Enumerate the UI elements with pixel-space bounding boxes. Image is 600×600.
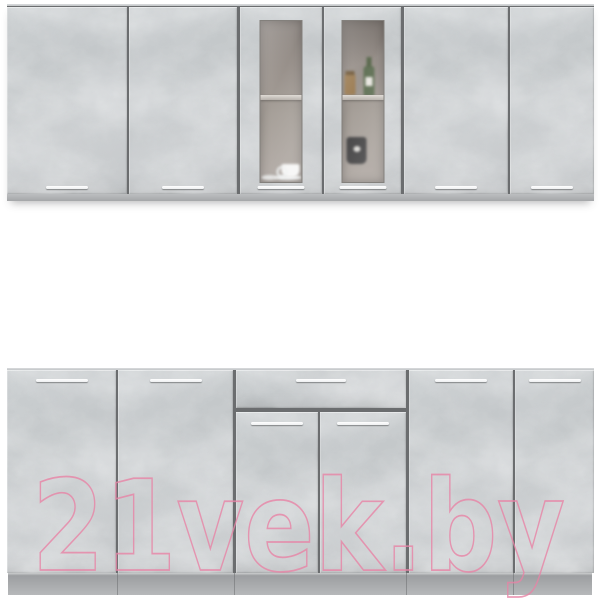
door-handle [339,186,386,189]
upper-cabinet-row [7,4,594,201]
door-handle [36,379,88,382]
upper-glass-door-left [240,7,322,194]
door-handle [251,422,303,425]
concrete-texture [409,370,513,573]
plinth-seam [513,573,514,595]
frost-overlay [261,21,302,182]
concrete-texture [515,370,594,573]
door-handle [258,186,305,189]
upper-door-5 [404,7,508,194]
plinth [8,573,592,595]
upper-top-edge [7,4,594,6]
upper-door-6 [510,7,594,194]
concrete-texture [118,370,233,573]
concrete-texture [320,412,406,573]
upper-glass-door-right [324,7,401,194]
base-door-6 [515,370,594,573]
upper-carcass-bottom [7,194,594,201]
concrete-texture [236,370,406,408]
door-handle [531,186,573,189]
door-handle [435,379,487,382]
door-handle [337,422,389,425]
concrete-texture [404,7,508,194]
base-drawer-front [236,370,406,408]
frosted-glass-pane [260,20,303,183]
concrete-texture [129,7,237,194]
door-handle [46,186,88,189]
plinth-seam [117,573,118,595]
concrete-texture [7,370,116,573]
concrete-texture [7,7,127,194]
frosted-glass-pane [341,20,384,183]
door-handle [435,186,477,189]
base-door-1 [7,370,116,573]
plinth-seam [406,573,407,595]
base-door-5 [409,370,513,573]
base-door-2 [118,370,233,573]
door-handle [162,186,204,189]
plinth-seam [234,573,235,595]
door-handle [529,379,581,382]
base-cabinet-row [7,368,594,573]
door-handle [150,379,202,382]
base-center-door-right [320,412,406,573]
product-photo-kitchen-set: 21vek.by [0,0,600,600]
upper-door-1 [7,7,127,194]
concrete-texture [236,412,318,573]
base-center-door-left [236,412,318,573]
frost-overlay [342,21,383,182]
concrete-texture [510,7,594,194]
upper-door-2 [129,7,237,194]
drawer-handle [296,379,346,382]
